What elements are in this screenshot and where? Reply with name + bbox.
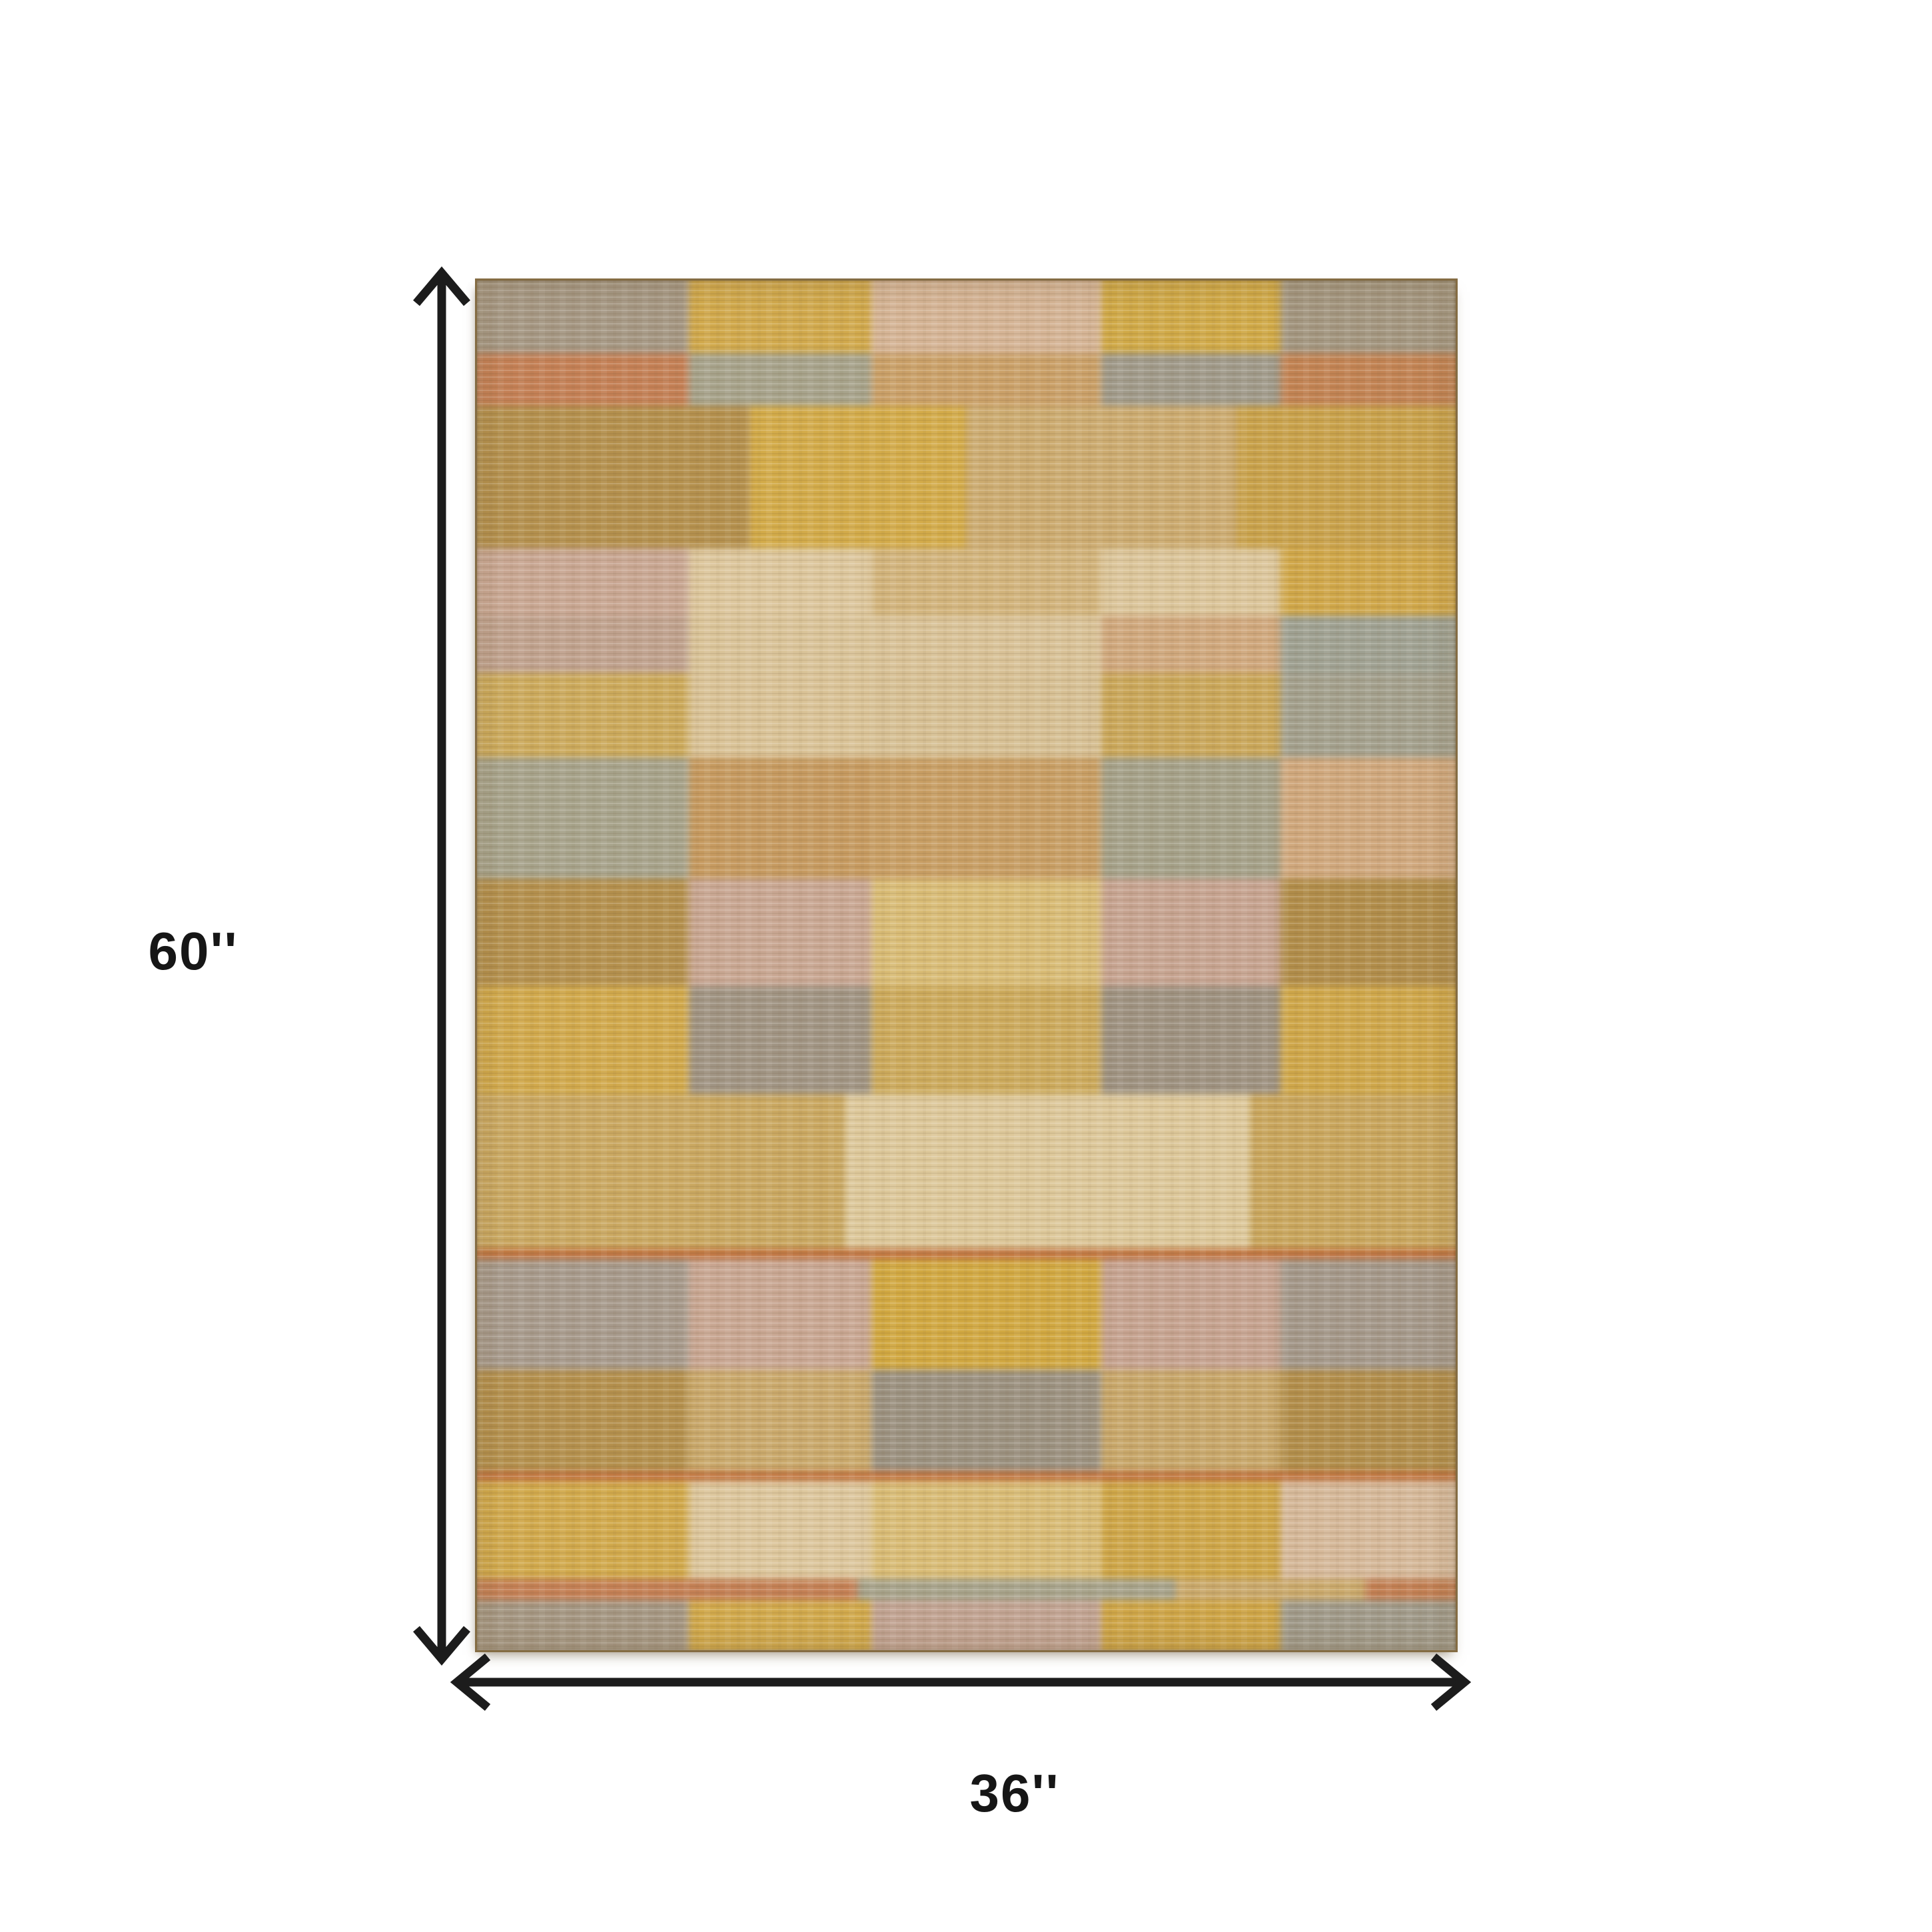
rug-block xyxy=(475,1094,845,1248)
rug-block xyxy=(1280,986,1458,1094)
rug-block xyxy=(475,353,689,406)
rug-block xyxy=(871,353,1101,406)
rug-block xyxy=(475,616,689,673)
rug-block xyxy=(1280,616,1458,673)
rug-block xyxy=(475,1481,689,1579)
product-dimension-diagram: 60'' 36'' xyxy=(0,0,1932,1932)
horizontal-arrow-icon xyxy=(445,1636,1474,1729)
rug-block xyxy=(871,616,1101,673)
rug-block xyxy=(475,1370,689,1471)
rug-block xyxy=(689,353,871,406)
rug-block xyxy=(1101,879,1280,987)
rug-block xyxy=(845,1094,1250,1248)
rug-block xyxy=(871,278,1101,353)
rug-block xyxy=(475,1259,689,1370)
rug-block xyxy=(871,986,1101,1094)
rug-block xyxy=(1280,278,1458,353)
rug-block xyxy=(1280,548,1458,616)
rug-row xyxy=(475,1259,1458,1370)
rug-block xyxy=(475,548,689,616)
rug-row xyxy=(475,1094,1458,1248)
rug-block xyxy=(475,986,689,1094)
rug-row xyxy=(475,406,1458,548)
rug-block xyxy=(1280,1370,1458,1471)
rug-block xyxy=(871,1259,1101,1370)
rug-block xyxy=(1236,406,1458,548)
rug-block xyxy=(689,548,871,616)
rug-block xyxy=(871,673,1101,757)
rug-block xyxy=(475,879,689,987)
width-dimension-label: 36'' xyxy=(908,1767,1121,1820)
rug-block xyxy=(689,278,871,353)
rug-block xyxy=(1280,1259,1458,1370)
rug-block xyxy=(1280,757,1458,879)
rug-block xyxy=(1101,1259,1280,1370)
rug-block xyxy=(689,879,871,987)
rug-block xyxy=(1101,986,1280,1094)
rug-row xyxy=(475,1370,1458,1471)
rug-block xyxy=(1176,1579,1365,1600)
rug-block xyxy=(1101,1481,1280,1579)
rug-row xyxy=(475,986,1458,1094)
rug-block xyxy=(475,757,689,879)
rug-block xyxy=(750,406,967,548)
rug-row xyxy=(475,673,1458,757)
rug-block xyxy=(857,1579,1176,1600)
rug-block xyxy=(689,757,871,879)
rug-block xyxy=(871,757,1101,879)
rug-block xyxy=(689,986,871,1094)
rug-row xyxy=(475,548,1458,616)
rug-pattern xyxy=(475,278,1458,1652)
rug-row xyxy=(475,353,1458,406)
rug-block xyxy=(1101,1370,1280,1471)
rug-block xyxy=(689,673,871,757)
height-dimension-arrow xyxy=(395,256,488,1676)
rug-block xyxy=(689,616,871,673)
rug-block xyxy=(475,1579,857,1600)
rug-block xyxy=(1101,757,1280,879)
rug-block xyxy=(475,1248,1458,1258)
rug-block xyxy=(689,1370,871,1471)
rug-block xyxy=(1280,673,1458,757)
rug-row xyxy=(475,1471,1458,1481)
rug-row xyxy=(475,1579,1458,1600)
rug-row xyxy=(475,757,1458,879)
rug-block xyxy=(1250,1094,1458,1248)
vertical-arrow-icon xyxy=(395,256,488,1676)
rug-block xyxy=(1280,879,1458,987)
rug-block xyxy=(871,1370,1101,1471)
rug-block xyxy=(1365,1579,1458,1600)
rug-image xyxy=(475,278,1458,1652)
rug-row xyxy=(475,1481,1458,1579)
rug-block xyxy=(1101,616,1280,673)
rug-block xyxy=(966,406,1236,548)
rug-row xyxy=(475,1248,1458,1258)
rug-row xyxy=(475,616,1458,673)
rug-block xyxy=(689,1481,871,1579)
rug-block xyxy=(871,548,1101,616)
rug-block xyxy=(1101,548,1280,616)
rug-block xyxy=(475,1471,1458,1481)
width-dimension-arrow xyxy=(445,1636,1474,1729)
rug-block xyxy=(1101,673,1280,757)
rug-block xyxy=(1280,353,1458,406)
rug-block xyxy=(1101,278,1280,353)
rug-row xyxy=(475,879,1458,987)
rug-block xyxy=(475,278,689,353)
rug-block xyxy=(475,673,689,757)
rug-row xyxy=(475,278,1458,353)
rug-block xyxy=(1280,1481,1458,1579)
rug-block xyxy=(475,406,750,548)
rug-block xyxy=(871,1481,1101,1579)
rug-block xyxy=(871,879,1101,987)
height-dimension-label: 60'' xyxy=(87,925,300,978)
rug-block xyxy=(1101,353,1280,406)
rug-block xyxy=(689,1259,871,1370)
